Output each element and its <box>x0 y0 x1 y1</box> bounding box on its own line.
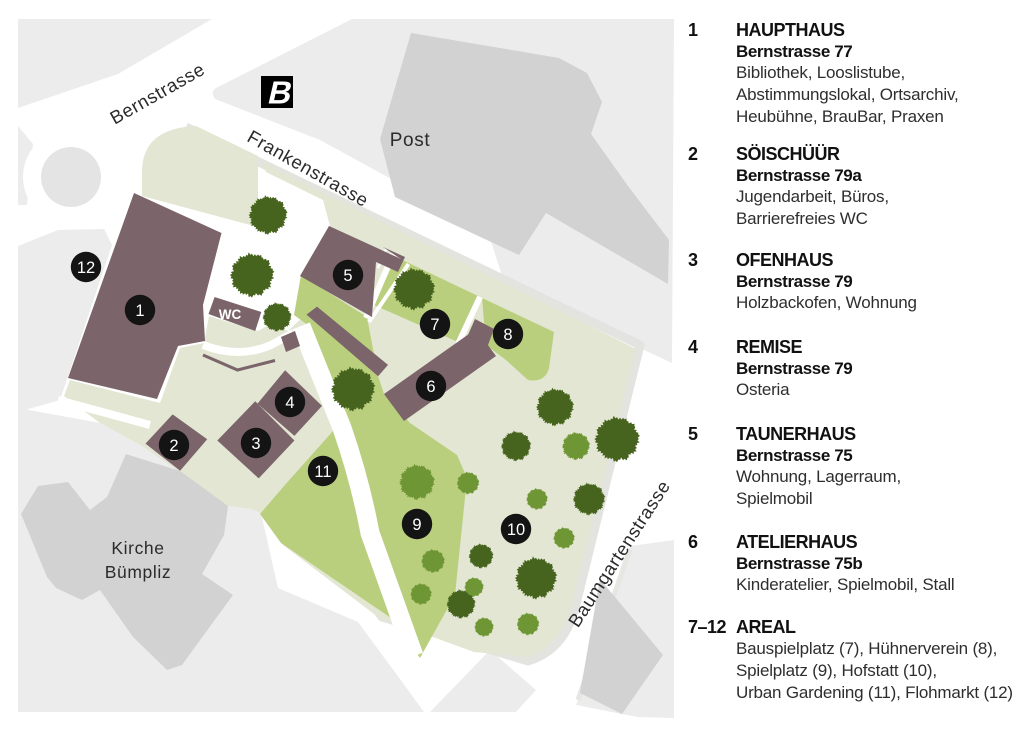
svg-text:8: 8 <box>503 326 512 344</box>
svg-text:Post: Post <box>390 130 431 151</box>
svg-text:Kirche: Kirche <box>111 538 164 558</box>
svg-text:1: 1 <box>135 302 144 320</box>
svg-text:4: 4 <box>285 394 294 412</box>
svg-text:2: 2 <box>169 437 178 455</box>
svg-text:WC: WC <box>219 307 242 322</box>
svg-text:5: 5 <box>343 267 352 285</box>
svg-text:10: 10 <box>507 521 525 539</box>
svg-text:12: 12 <box>77 259 95 277</box>
svg-text:11: 11 <box>314 463 331 481</box>
svg-text:9: 9 <box>412 516 421 534</box>
svg-text:6: 6 <box>426 378 435 396</box>
svg-text:Bümpliz: Bümpliz <box>105 562 171 582</box>
svg-text:3: 3 <box>251 435 260 453</box>
svg-text:7: 7 <box>430 316 439 334</box>
